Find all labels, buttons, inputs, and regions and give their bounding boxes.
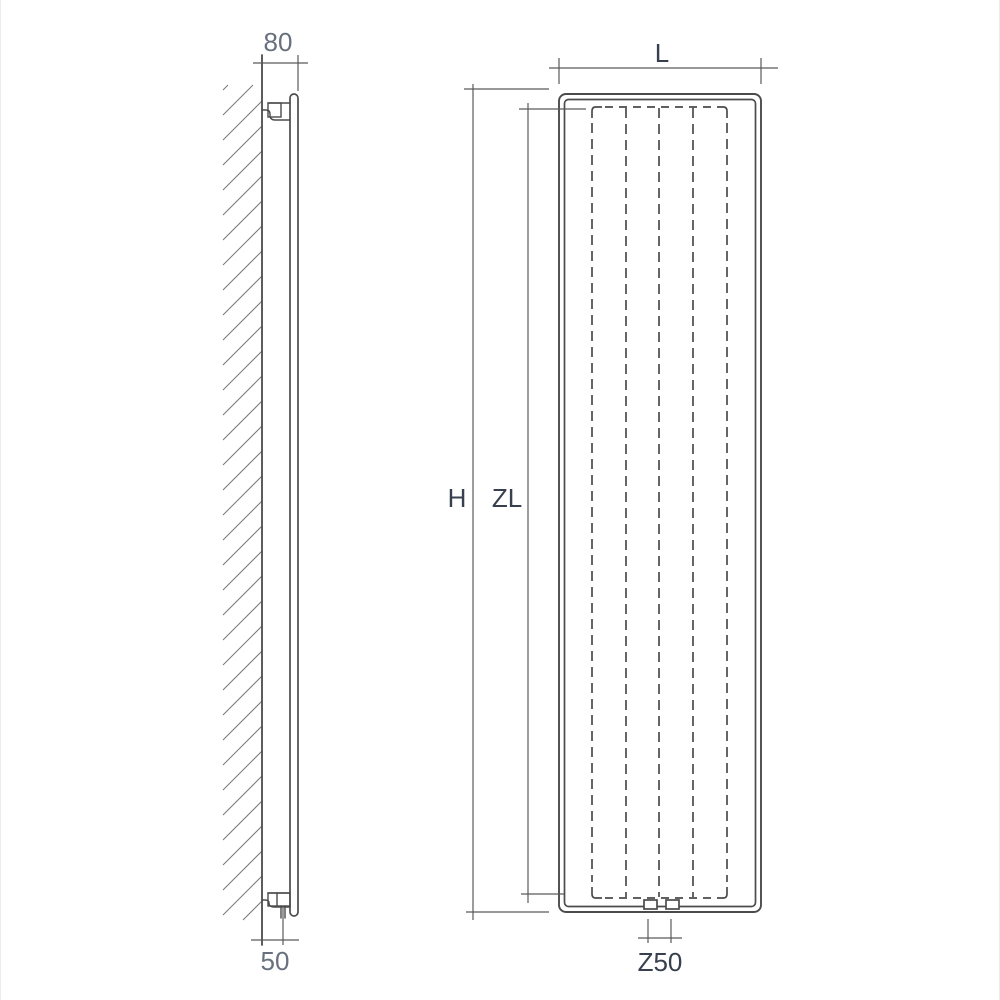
hatch-line <box>223 551 262 590</box>
hatch-line <box>223 626 262 665</box>
side-view: 80 50 <box>223 27 308 976</box>
pipe-offset-dimension-label: 50 <box>261 946 290 976</box>
hatch-line <box>243 901 262 920</box>
wall-hatching <box>223 85 262 920</box>
dimension-pipe-offset-50: 50 <box>251 908 299 976</box>
technical-drawing-svg: 80 50 <box>1 0 1000 1000</box>
hatch-line <box>223 851 262 890</box>
radiator-side-panel <box>290 94 298 916</box>
hatch-line <box>223 701 262 740</box>
hatch-line <box>223 826 262 865</box>
hatch-line <box>223 276 262 315</box>
hatch-line <box>223 126 262 165</box>
hatch-line <box>223 201 262 240</box>
hatch-line <box>223 501 262 540</box>
bottom-mounting-bracket <box>262 893 290 918</box>
hatch-line <box>223 801 262 840</box>
hatch-line <box>223 351 262 390</box>
hatch-line <box>223 226 262 265</box>
hatch-line <box>223 85 253 115</box>
hatch-line <box>223 576 262 615</box>
hatch-line <box>223 176 262 215</box>
radiator-outer-outline <box>559 94 761 912</box>
hatch-line <box>223 876 262 915</box>
height-dimension-label: H <box>448 483 467 513</box>
dimension-width-L: L <box>549 38 778 84</box>
width-dimension-label: L <box>655 38 669 68</box>
hatch-line <box>223 251 262 290</box>
hatch-line <box>223 326 262 365</box>
hatch-line <box>223 301 262 340</box>
hatch-line <box>223 651 262 690</box>
hatch-line <box>223 676 262 715</box>
top-mounting-bracket <box>262 103 290 120</box>
hatch-line <box>223 526 262 565</box>
connection-nipple-left <box>644 900 657 909</box>
element-height-dimension-label: ZL <box>492 483 522 513</box>
hatch-line <box>223 85 228 90</box>
hatch-line <box>223 101 262 140</box>
connection-spacing-dimension-label: Z50 <box>638 947 683 977</box>
hatch-line <box>223 751 262 790</box>
front-view: L H ZL Z50 <box>448 38 778 977</box>
hatch-line <box>223 451 262 490</box>
dimension-connection-Z50: Z50 <box>638 919 683 977</box>
connection-nipple-right <box>666 900 679 909</box>
depth-dimension-label: 80 <box>264 27 293 57</box>
hatch-line <box>223 376 262 415</box>
hatch-line <box>223 401 262 440</box>
hatch-line <box>223 726 262 765</box>
radiator-dimension-drawing: 80 50 <box>0 0 1000 1000</box>
hatch-line <box>223 776 262 815</box>
hatch-line <box>223 426 262 465</box>
hatch-line <box>223 601 262 640</box>
hatch-line <box>223 476 262 515</box>
hatch-line <box>223 151 262 190</box>
